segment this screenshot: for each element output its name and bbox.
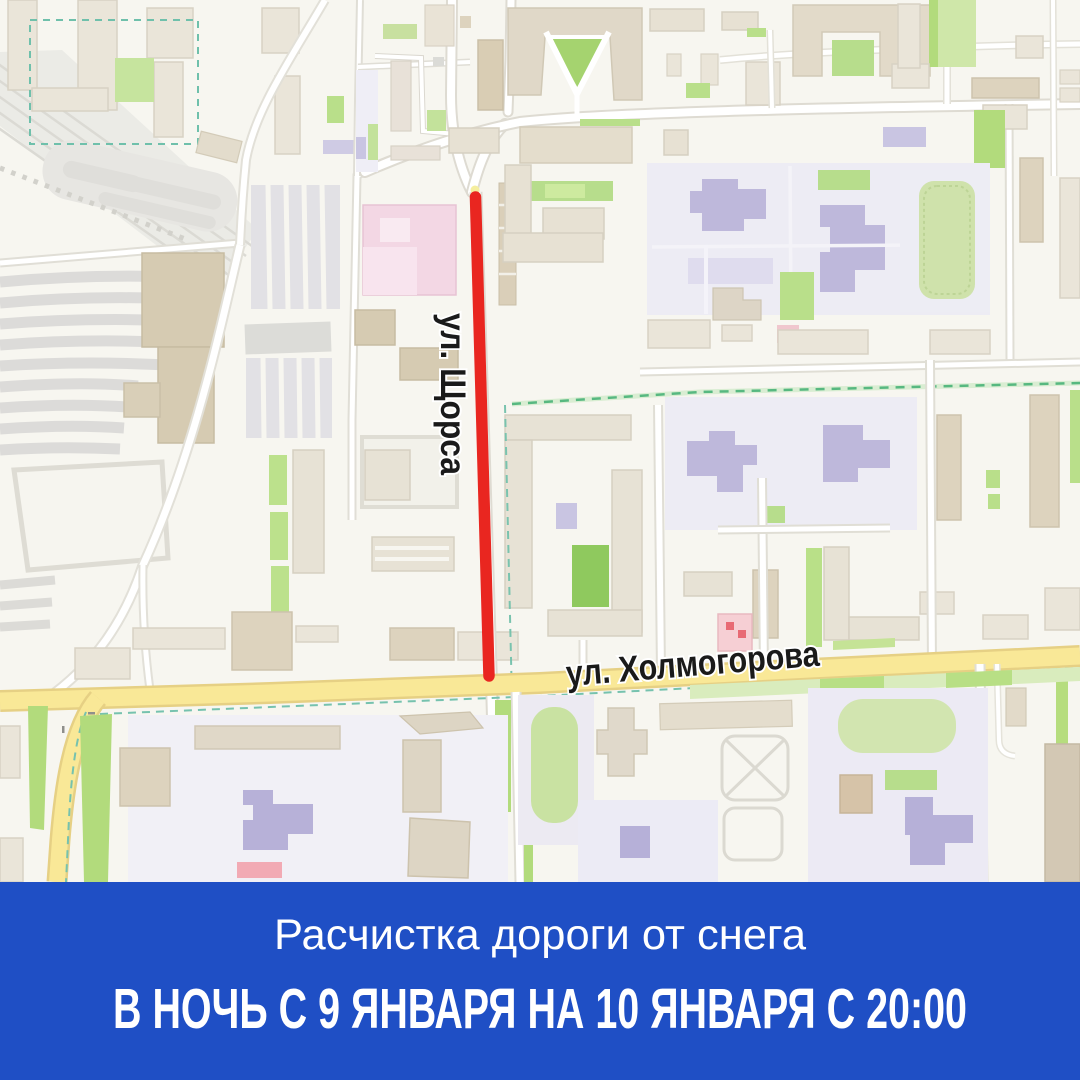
svg-text:Расчистка дороги от снега: Расчистка дороги от снега [274,911,806,959]
svg-text:ул. Щорса: ул. Щорса [433,313,472,475]
svg-text:В НОЧЬ С 9 ЯНВАРЯ НА 10 ЯНВАРЯ: В НОЧЬ С 9 ЯНВАРЯ НА 10 ЯНВАРЯ С 20:00 [113,977,967,1041]
